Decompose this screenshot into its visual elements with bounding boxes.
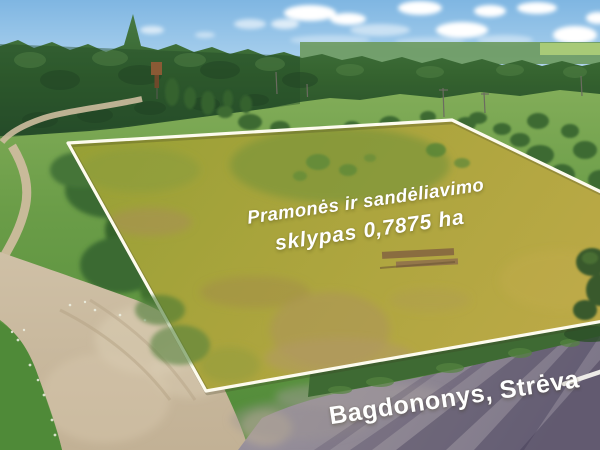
aerial-photo: Pramonės ir sandėliavimo sklypas 0,7875 … (0, 0, 600, 450)
scene-illustration (0, 0, 600, 450)
